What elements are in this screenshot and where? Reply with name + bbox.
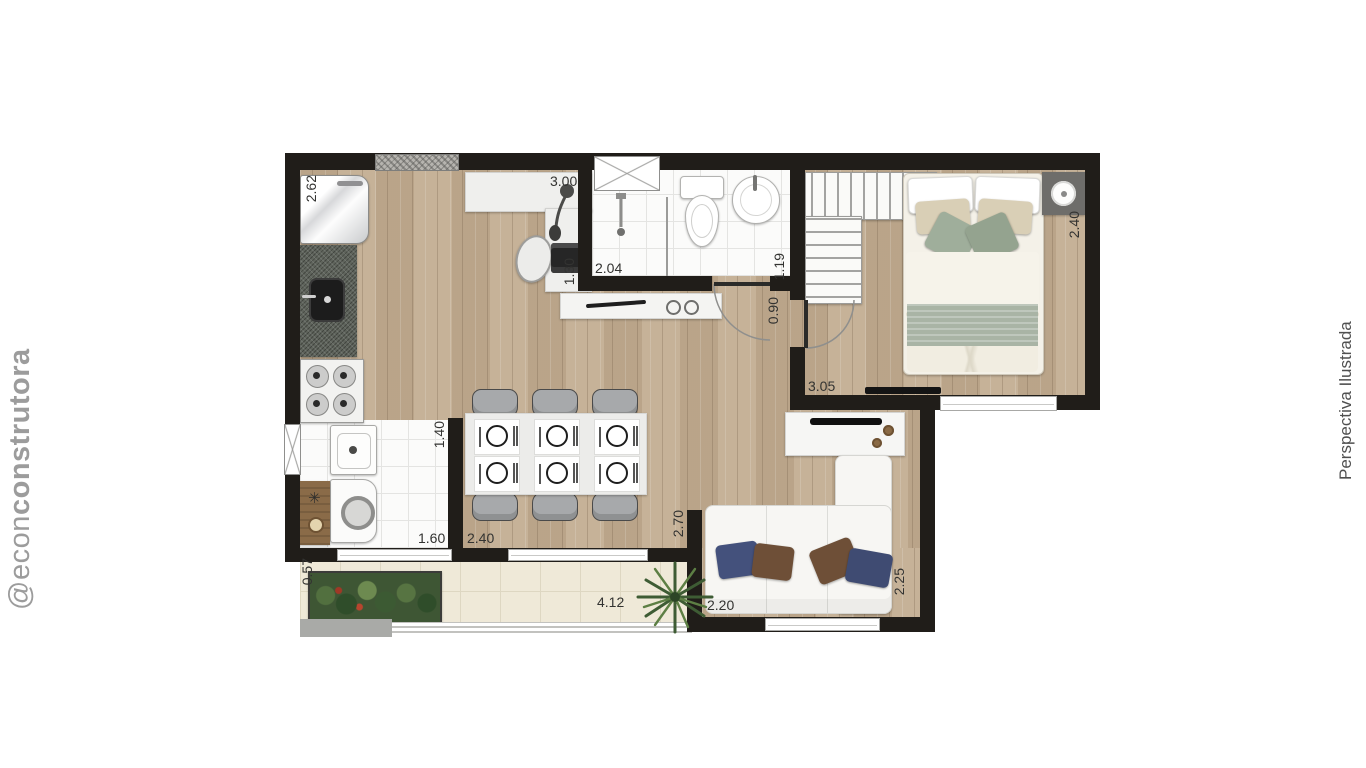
- balcony-door: [337, 549, 452, 561]
- dim-service-width: 1.60: [418, 531, 445, 545]
- laundry-window: [284, 424, 301, 475]
- dim-shower-width: 2.04: [595, 261, 622, 275]
- dim-living-side: 2.25: [892, 568, 906, 595]
- burner-icon: [333, 393, 356, 416]
- fridge-handle: [337, 181, 363, 186]
- bedroom-tv: [865, 387, 941, 394]
- shelf-plant-icon: ✳: [308, 491, 322, 507]
- wall-living-right: [920, 410, 935, 632]
- dim-living-wall: 2.70: [671, 510, 685, 537]
- dim-kitchen-depth: 2.62: [304, 175, 318, 202]
- laundry-shelf: ✳: [300, 481, 330, 545]
- place-setting: [474, 456, 520, 492]
- dim-bedroom-width: 3.05: [808, 379, 835, 393]
- dim-dining-width: 2.40: [467, 531, 494, 545]
- dim-planter-depth: 0.57: [300, 558, 314, 585]
- wall-bathroom-bottom: [578, 276, 712, 291]
- wall-laundry: [448, 418, 463, 548]
- washer-door-icon: [341, 496, 375, 530]
- stove: [300, 359, 364, 423]
- dim-office-depth: 1.30: [562, 258, 576, 285]
- dim-bathroom-depth: 1.19: [772, 253, 786, 280]
- kitchen-faucet-icon: [302, 295, 316, 298]
- perspective-caption: Perspectiva Ilustrada: [1336, 300, 1356, 480]
- living-window: [765, 618, 880, 631]
- bedroom-door-icon: [790, 298, 858, 352]
- burner-icon: [306, 365, 329, 388]
- balcony-solid-rail: [300, 619, 392, 637]
- place-setting: [594, 456, 640, 492]
- sofa-pillow-brown: [751, 543, 795, 582]
- dim-service-depth: 1.40: [432, 421, 446, 448]
- dim-office-width: 3.00: [550, 174, 577, 188]
- dining-chair: [532, 491, 578, 521]
- dim-hall-width: 0.90: [766, 297, 780, 324]
- dining-chair: [472, 491, 518, 521]
- dining-chair: [592, 491, 638, 521]
- burner-icon: [333, 365, 356, 388]
- nightstand: [1042, 172, 1085, 215]
- wardrobe-side: [805, 216, 862, 304]
- console-object: [586, 300, 646, 308]
- wall-bedroom-right: [1085, 153, 1100, 410]
- dim-balcony-span: 4.12: [597, 595, 624, 609]
- kitchen-counter: [300, 245, 357, 357]
- wall-bathroom-left: [578, 170, 592, 291]
- palm-plant-icon: [633, 558, 717, 636]
- bed-foot-fold: [907, 346, 1038, 372]
- console-decor-icon: [872, 438, 882, 448]
- tv-icon: [810, 418, 882, 425]
- basin-faucet-icon: [753, 175, 757, 191]
- wall-bedroom-left-lower: [790, 347, 805, 410]
- watermark-prefix: @econ: [4, 515, 37, 610]
- bathroom-window: [594, 156, 660, 191]
- console-decor-icon: [883, 425, 894, 436]
- shower-head-icon: [610, 193, 632, 239]
- tank-faucet-icon: [349, 446, 357, 454]
- burner-icon: [306, 393, 329, 416]
- floor-plan: ✳: [285, 153, 1100, 645]
- desk-decor-icon: [547, 181, 577, 243]
- dim-sofa-span: 2.20: [707, 598, 734, 612]
- console-knob-icon: [666, 300, 681, 315]
- console-knob-icon: [684, 300, 699, 315]
- kitchen-faucet-base: [324, 296, 331, 303]
- dim-bedroom-depth: 2.40: [1067, 211, 1081, 238]
- laundry-tank: [330, 425, 377, 475]
- wall-left: [285, 153, 300, 548]
- washing-machine: [330, 479, 377, 543]
- washbasin: [732, 176, 780, 224]
- kitchen-window: [375, 154, 459, 171]
- bed-blanket: [907, 304, 1038, 348]
- toilet-bowl-inner: [691, 204, 713, 238]
- dining-table: [465, 413, 647, 495]
- bed: [903, 173, 1044, 375]
- watermark-suffix: construtora: [4, 349, 37, 516]
- builder-watermark: @econconstrutora: [4, 170, 37, 610]
- place-setting: [474, 419, 520, 455]
- place-setting: [534, 419, 580, 455]
- wall-bedroom-left-upper: [790, 153, 805, 300]
- living-balcony-window: [508, 549, 648, 561]
- bedroom-window: [940, 396, 1057, 411]
- place-setting: [534, 456, 580, 492]
- sofa-pillow-blue: [844, 547, 893, 588]
- lamp-center: [1061, 191, 1067, 197]
- planter-box: [308, 571, 442, 625]
- hall-console: [560, 293, 722, 319]
- tv-console: [785, 412, 905, 456]
- place-setting: [594, 419, 640, 455]
- shelf-bowl-icon: [308, 517, 324, 533]
